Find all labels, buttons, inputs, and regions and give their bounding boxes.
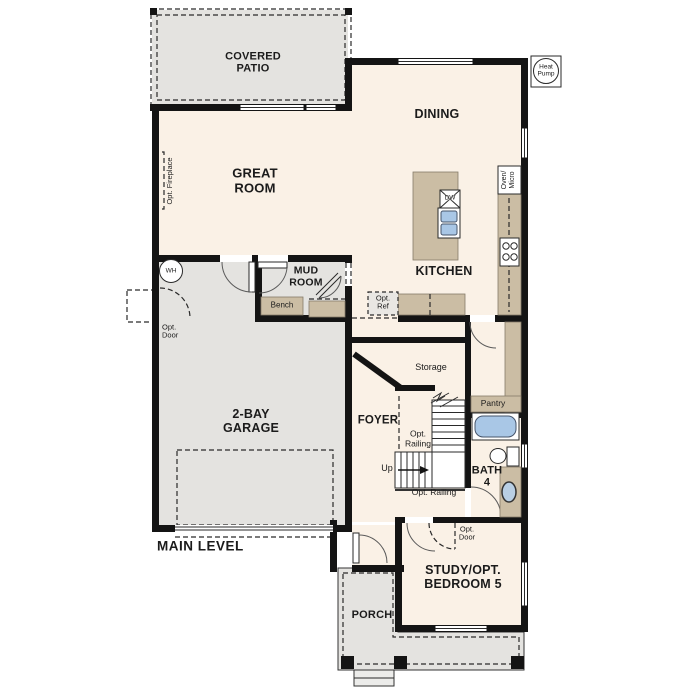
room-label-kitchen: KITCHEN <box>416 264 473 278</box>
great-room-window-2 <box>306 105 336 111</box>
patio-post-left <box>150 8 157 15</box>
room-label-bath: BATH 4 <box>472 465 503 490</box>
room-label-foyer: FOYER <box>358 415 399 428</box>
kitchen-sink <box>438 208 460 238</box>
floor-plan: COVERED PATIO GREAT ROOM DINING KITCHEN … <box>0 0 687 687</box>
dining-window <box>398 59 473 65</box>
room-label-dining: DINING <box>415 107 460 121</box>
study-bottom-window <box>435 626 487 632</box>
room-label-garage: 2-BAY GARAGE <box>223 407 279 435</box>
annotation-wh: WH <box>166 267 177 274</box>
annotation-heat-pump: Heat Pump <box>538 64 555 79</box>
annotation-dw: DW <box>445 194 456 201</box>
great-room-window <box>240 105 304 111</box>
annotation-oven-micro: Oven/ Micro <box>501 171 517 190</box>
mud-room-cased-opening <box>345 263 352 286</box>
room-label-great-room: GREAT ROOM <box>232 166 278 195</box>
annotation-opt-ref: Opt. Ref <box>376 295 390 312</box>
cooktop <box>500 238 519 266</box>
study-side-window <box>522 562 528 606</box>
open-passage-floor <box>345 111 352 255</box>
plan-title: MAIN LEVEL <box>157 538 244 553</box>
porch-steps <box>354 670 394 686</box>
room-label-porch: PORCH <box>352 609 393 621</box>
annotation-opt-door-study: Opt. Door <box>459 526 475 543</box>
room-label-covered-patio: COVERED PATIO <box>225 51 281 76</box>
bathtub <box>472 413 519 440</box>
annotation-opt-door-garage: Opt. Door <box>162 324 178 341</box>
annotation-up: Up <box>381 463 393 473</box>
garage-vehicle-door <box>175 525 333 532</box>
room-label-study: STUDY/OPT. BEDROOM 5 <box>424 563 502 591</box>
stair-landing <box>432 452 465 488</box>
bath-window <box>522 444 528 468</box>
closet-shelf <box>309 301 345 317</box>
annotation-pantry: Pantry <box>481 399 506 409</box>
annotation-opt-fireplace: Opt. Fireplace <box>166 157 174 204</box>
dining-side-window <box>522 128 528 158</box>
floor-plan-drawing <box>0 0 687 687</box>
annotation-opt-railing-upper: Opt. Railing <box>405 429 431 448</box>
annotation-opt-railing-lower: Opt. Railing <box>412 488 456 498</box>
annotation-storage: Storage <box>415 362 447 372</box>
annotation-bench: Bench <box>271 302 294 311</box>
patio-post-right <box>345 8 352 15</box>
room-label-mud-room: MUD ROOM <box>289 265 322 289</box>
vanity-sink <box>502 482 516 502</box>
kitchen-lower-counter <box>398 294 465 315</box>
